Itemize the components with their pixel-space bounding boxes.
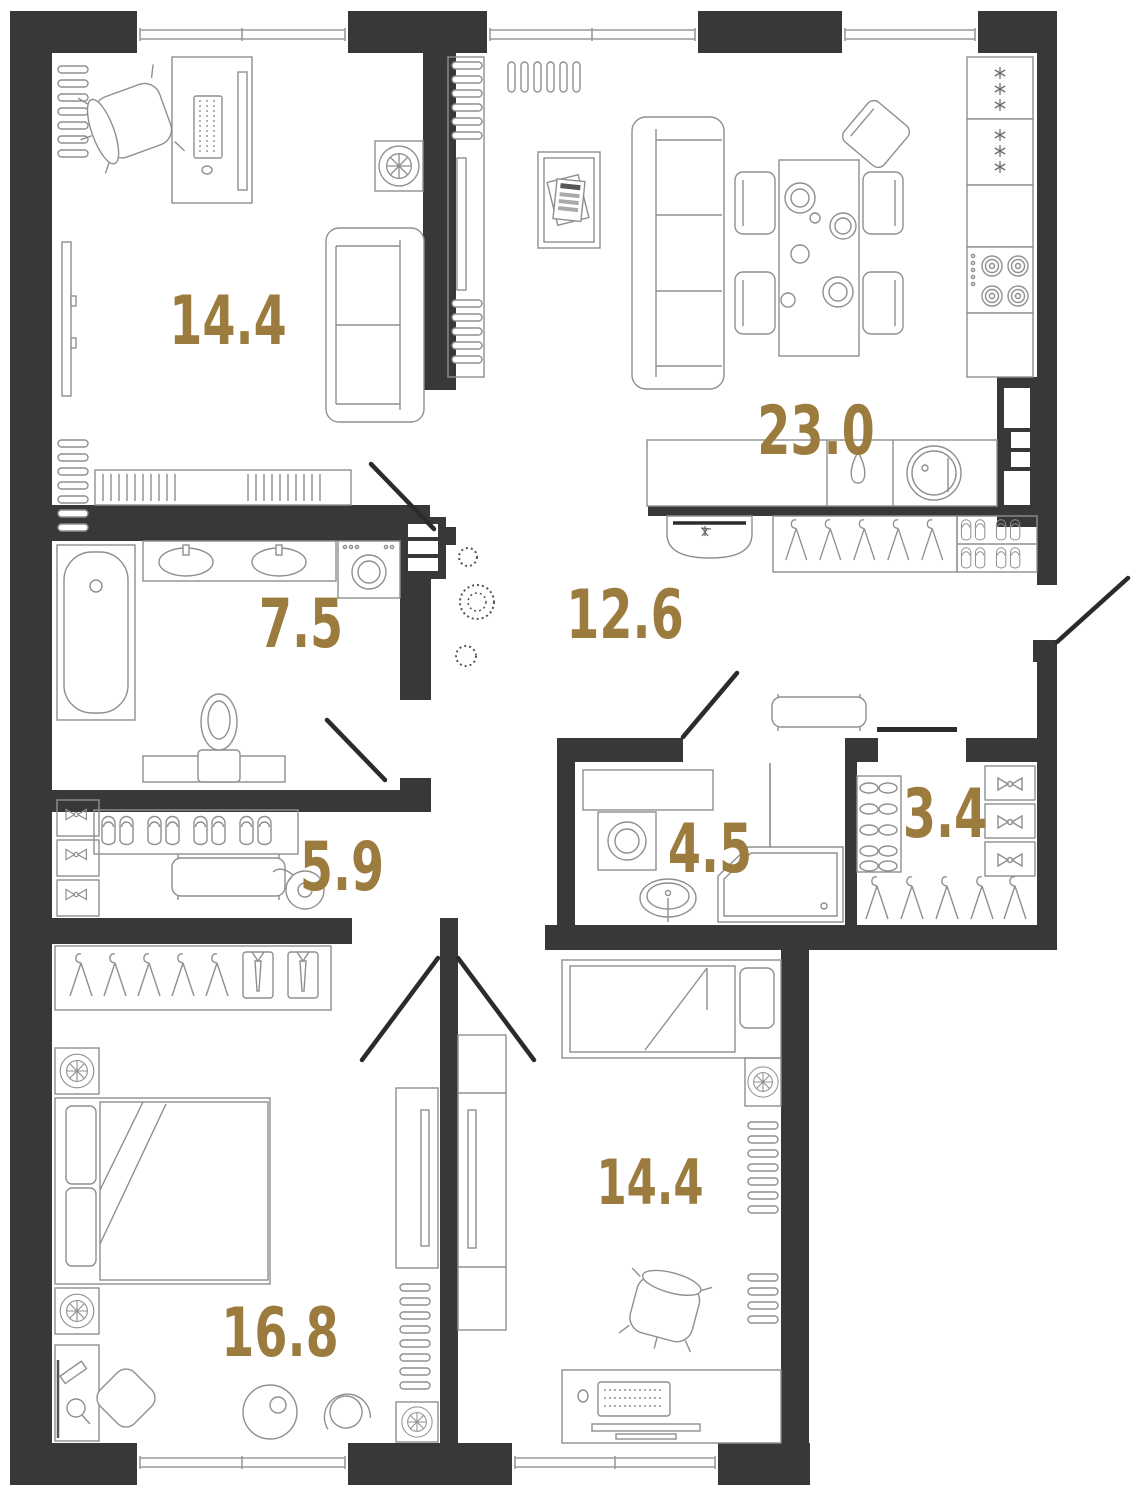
tv-panel — [62, 242, 76, 396]
keyboard — [194, 96, 222, 158]
door-swing-shower-room — [683, 673, 737, 737]
wall-bathroom-right — [400, 579, 431, 700]
double-bed — [55, 1098, 270, 1284]
room-area-label-study: 14.4 — [169, 288, 286, 356]
newspaper — [547, 175, 589, 225]
side-column — [745, 1058, 781, 1323]
wall-closet-top-right — [966, 738, 1057, 762]
kitchen-counter — [967, 313, 1033, 377]
door-leaf-closet — [877, 727, 957, 732]
window — [487, 11, 698, 53]
bookshelf — [95, 470, 351, 505]
desk — [562, 1370, 781, 1443]
mouse — [202, 166, 212, 174]
bathtub — [57, 545, 135, 720]
door-swing-entry — [1057, 578, 1128, 642]
counter — [583, 770, 713, 810]
vent-fan — [55, 1288, 99, 1334]
wall-shower-closet — [845, 762, 857, 925]
stove — [967, 247, 1033, 313]
window — [512, 1443, 718, 1485]
radiator — [58, 440, 88, 531]
armchair — [319, 1389, 372, 1433]
pillow — [66, 1106, 96, 1184]
monitor-base — [592, 1424, 700, 1431]
monitor — [238, 72, 247, 190]
room-area-label-bathroom: 7.5 — [259, 591, 343, 659]
single-bed — [562, 960, 781, 1058]
washing-machine — [338, 541, 400, 598]
room-area-label-closet: 3.4 — [903, 781, 987, 849]
dressing-table — [55, 1345, 99, 1441]
room-area-label-bedroom-2: 14.4 — [596, 1152, 703, 1214]
wall-study-bathroom — [52, 505, 430, 541]
vent-fan — [55, 1048, 99, 1094]
wall-exterior-left — [10, 11, 52, 1485]
keyboard — [598, 1382, 670, 1416]
fridge — [967, 57, 1033, 185]
shoe-stack — [857, 776, 901, 872]
radiator — [58, 66, 88, 157]
hallway-furniture — [456, 516, 1037, 731]
folded-clothes-shelves — [985, 766, 1035, 876]
room-area-label-bedroom: 16.8 — [221, 1300, 338, 1368]
wall-hall-bottom — [545, 925, 1057, 950]
pouf — [243, 1385, 297, 1439]
media-column — [396, 1088, 438, 1442]
wall-exterior-right-closet — [1037, 662, 1057, 950]
window — [137, 1443, 348, 1485]
pillow — [740, 968, 774, 1028]
slipper-shelf — [94, 810, 298, 854]
wardrobe — [55, 946, 331, 1010]
tv-panel — [457, 158, 466, 290]
room-area-label-hallway: 12.6 — [566, 582, 683, 650]
wall-study-living — [423, 52, 456, 390]
wall-closet-top-left — [845, 738, 878, 762]
room-wardrobe-hall-furniture — [57, 800, 324, 916]
room-living-kitchen-furniture — [448, 57, 1033, 506]
wall-bedrooms-partition — [440, 918, 458, 1443]
wall-entry-stub — [1033, 640, 1057, 662]
window — [137, 11, 348, 53]
vent-fan — [375, 141, 423, 191]
wall-shower-top — [557, 738, 683, 762]
hanger-rod — [866, 877, 1026, 919]
wall-kitchen-hall-thin — [648, 506, 1037, 516]
radiator — [508, 62, 580, 92]
wall-hall-bedroom — [52, 918, 352, 944]
double-sink-vanity — [143, 541, 336, 581]
window — [842, 11, 978, 53]
accessory-rack — [57, 800, 99, 916]
bench — [172, 854, 285, 900]
room-area-label-wardrobe-hall: 5.9 — [300, 834, 384, 902]
room-area-label-shower-room: 4.5 — [668, 816, 752, 884]
wall-bathroom-bottom — [52, 790, 430, 812]
kitchen-counter — [967, 185, 1033, 247]
door-swing-bedroom — [362, 958, 438, 1060]
mouse — [578, 1390, 588, 1402]
desk — [172, 57, 252, 203]
laundry-basket — [667, 516, 752, 558]
stool — [92, 1364, 160, 1432]
office-chair — [614, 1262, 713, 1359]
wall-exterior-right-bottom — [781, 950, 809, 1485]
dining-table — [779, 160, 859, 356]
washing-machine — [598, 812, 656, 870]
toilet — [143, 694, 285, 782]
duct-shaft — [997, 377, 1057, 527]
ceiling-light-decor — [456, 548, 494, 666]
floor-plan-drawing — [0, 0, 1143, 1497]
door-swing-bathroom — [327, 720, 385, 780]
tv-panel — [421, 1110, 429, 1246]
sofa — [632, 117, 724, 389]
room-bathroom-furniture — [57, 541, 400, 782]
media-column — [458, 1035, 506, 1330]
pillow — [66, 1188, 96, 1266]
tv-panel — [468, 1110, 476, 1248]
floor-plan: 14.4 23.0 7.5 12.6 5.9 4.5 3.4 16.8 14.4 — [0, 0, 1143, 1497]
bench — [772, 694, 866, 731]
wall-shower-left — [557, 738, 575, 925]
coat-rack — [773, 516, 957, 572]
coffee-table — [538, 152, 600, 248]
door-swing-bedroom-2 — [458, 958, 534, 1060]
loveseat — [326, 228, 424, 422]
room-area-label-living-kitchen: 23.0 — [757, 398, 874, 466]
